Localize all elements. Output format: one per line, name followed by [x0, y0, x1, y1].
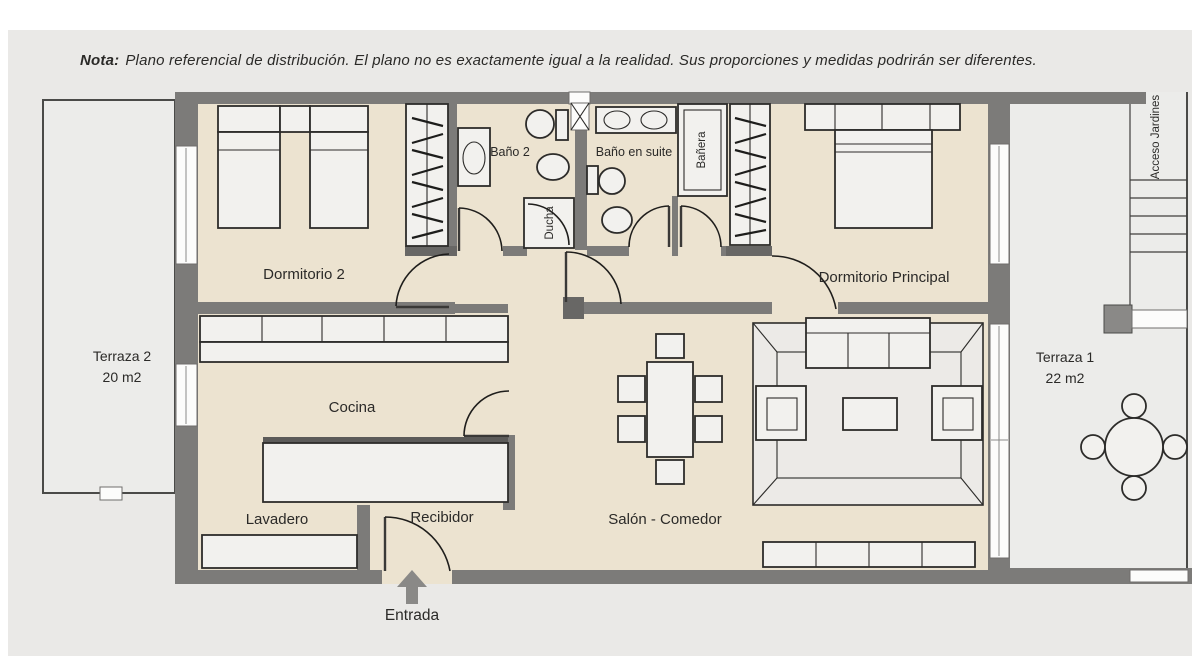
x-cabinet: [571, 103, 589, 130]
sofa: [806, 318, 930, 368]
armchair: [932, 386, 982, 440]
terrace-chair: [1163, 435, 1187, 459]
label-bano-2: Baño 2: [490, 145, 530, 159]
terraza-2-step: [100, 487, 122, 500]
sink: [599, 168, 625, 194]
wardrobe-dormitorio-2: [406, 104, 448, 246]
wardrobe-sill-principal: [726, 246, 772, 256]
wardrobe-sill-dorm2: [405, 246, 457, 256]
wall-suite-banera: [672, 196, 678, 256]
headboard: [218, 106, 280, 132]
terrace-chair: [1122, 476, 1146, 500]
laundry-counter: [202, 535, 357, 568]
nightstand: [280, 106, 310, 132]
dining-chair: [618, 416, 645, 442]
label-acceso-jardines: Acceso Jardines: [1150, 95, 1162, 180]
bath-wall-segment: [587, 246, 629, 256]
label-salon-comedor: Salón - Comedor: [608, 511, 721, 528]
label-bano-en-suite: Baño en suite: [596, 145, 672, 159]
spine-wall-center: [563, 302, 772, 314]
bottom-wall: [175, 570, 1010, 584]
label-terraza-2: Terraza 2: [93, 348, 152, 364]
label-dormitorio-principal: Dormitorio Principal: [819, 269, 950, 286]
bidet: [537, 154, 569, 180]
coffee-table: [843, 398, 897, 430]
sink: [526, 110, 554, 138]
terrace-chair: [1081, 435, 1105, 459]
dining-chair: [695, 376, 722, 402]
label-recibidor: Recibidor: [410, 509, 473, 526]
kitchen-island: [263, 443, 508, 502]
recibidor: Recibidor: [410, 509, 473, 526]
banera: Bañera: [678, 104, 727, 196]
bed-single: [310, 132, 368, 228]
armchair: [756, 386, 806, 440]
dining-table: [647, 362, 693, 457]
floorplan-page: Nota:Plano referencial de distribución. …: [0, 0, 1200, 672]
label-lavadero: Lavadero: [246, 511, 309, 528]
kitchen-counter-front: [200, 342, 508, 362]
label-ducha: Ducha: [544, 206, 556, 240]
lavadero-east-wall: [357, 505, 370, 570]
dining-chair: [656, 460, 684, 484]
headboard: [310, 106, 368, 132]
wardrobe-principal: [730, 104, 770, 245]
dining-chair: [656, 334, 684, 358]
label-entrada: Entrada: [385, 607, 440, 624]
double-vanity: [596, 107, 676, 133]
label-terraza-1: Terraza 1: [1036, 349, 1095, 365]
ducha: Ducha: [524, 198, 574, 248]
kitchen-counter: [200, 316, 508, 342]
spine-wall-east: [838, 302, 988, 314]
bed-double: [835, 130, 932, 228]
terraza-2: Terraza 2 20 m2: [43, 100, 175, 500]
terraza-1-top-wall: [1010, 92, 1146, 104]
dining-chair: [695, 416, 722, 442]
garden-step-slab: [1132, 310, 1187, 328]
toilet: [602, 207, 632, 233]
label-cocina: Cocina: [329, 399, 376, 416]
planter: [1104, 305, 1132, 333]
terraza-1-bottom-gap: [1130, 570, 1188, 582]
bed-single: [218, 132, 280, 228]
label-terraza-1-area: 22 m2: [1046, 370, 1085, 386]
label-banera: Bañera: [696, 131, 708, 169]
terrace-table: [1105, 418, 1163, 476]
counter-back-edge: [455, 304, 508, 313]
terrace-chair: [1122, 394, 1146, 418]
bath-cabinet: [556, 110, 568, 140]
floorplan-drawing: Terraza 2 20 m2 Acceso Jardines Terraza …: [0, 0, 1200, 672]
top-wall-gap: [569, 92, 590, 104]
label-dormitorio-2: Dormitorio 2: [263, 266, 345, 283]
terraza-2-floor: [43, 100, 175, 493]
dining-chair: [618, 376, 645, 402]
bath-cabinet: [587, 166, 598, 194]
terraza-1: Acceso Jardines Terraza 1 22 m2: [1010, 92, 1192, 584]
label-terraza-2-area: 20 m2: [103, 369, 142, 385]
top-wall: [175, 92, 1010, 104]
